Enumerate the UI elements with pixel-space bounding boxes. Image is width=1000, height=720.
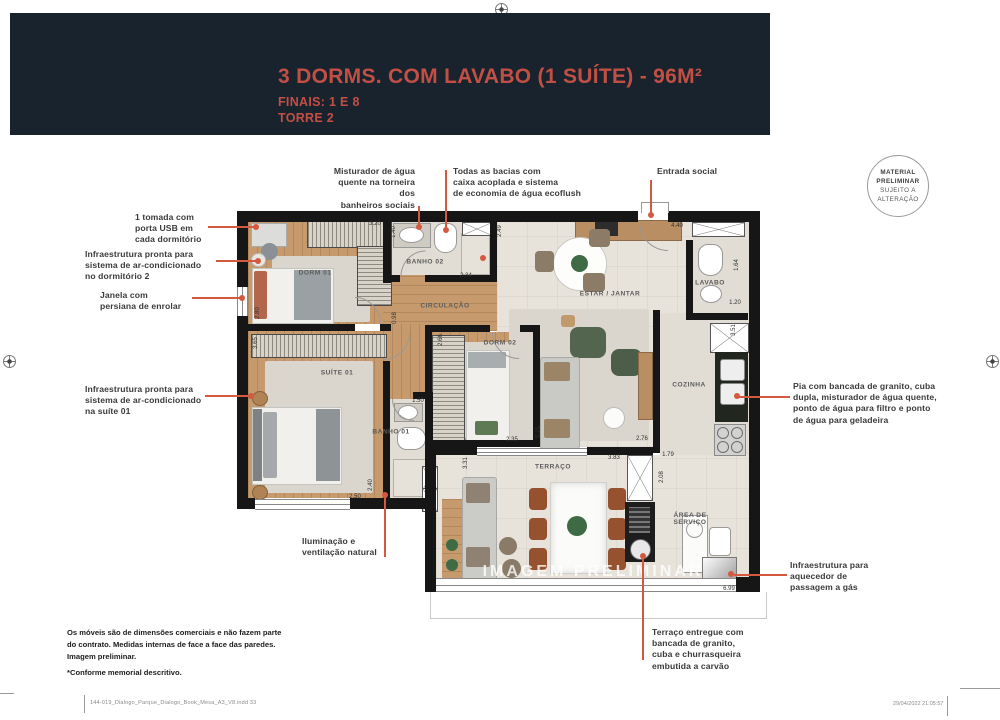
window [255, 499, 350, 510]
dimension-label: 2.34 [460, 273, 472, 279]
sliding-door [477, 448, 587, 456]
wall [237, 316, 248, 509]
stamp-line: MATERIAL [880, 168, 915, 177]
annotation-pia: Pia com bancada de granito, cuba dupla, … [793, 381, 948, 426]
print-timestamp: 29/04/2022 21:05:57 [893, 701, 943, 707]
window-shaft [710, 323, 749, 353]
burner [717, 427, 729, 439]
wall [686, 240, 693, 320]
dimension-label: 1.50 [412, 398, 424, 404]
wall [237, 211, 638, 222]
wardrobe [251, 334, 387, 358]
dimension-label: 2.80 [255, 307, 261, 319]
side-table [603, 407, 625, 429]
dimension-label: 3.65 [253, 337, 259, 349]
annotation-aquecedor: Infraestrutura para aquecedor de passage… [790, 560, 905, 594]
footer-memorial: *Conforme memorial descritivo. [67, 668, 367, 677]
registration-mark-right [986, 355, 999, 368]
leader-line [739, 396, 790, 398]
room-label: ESTAR / JANTAR [580, 291, 641, 298]
crop-mark [960, 688, 1000, 689]
leader-dot [648, 212, 654, 218]
side-table [561, 315, 575, 327]
wall [490, 211, 497, 282]
dimension-label: 1.40 [391, 226, 397, 238]
dimension-label: 1.20 [729, 300, 741, 306]
wall [380, 324, 391, 331]
leader-dot [734, 393, 740, 399]
bed-pillow [263, 412, 277, 478]
wall [425, 455, 436, 592]
chair [589, 229, 610, 247]
dimension-label: 2.50 [349, 494, 361, 500]
chair [529, 488, 547, 510]
annotation-janela: Janela com persiana de enrolar [100, 290, 198, 312]
window-shaft [627, 455, 653, 501]
stamp-line: SUJEITO A [880, 186, 916, 195]
annotation-entrada: Entrada social [657, 166, 737, 177]
leader-dot [239, 295, 245, 301]
wall [425, 440, 540, 447]
chair [529, 518, 547, 540]
kitchen-sink [720, 359, 745, 381]
dimension-label: 3.51 [731, 324, 737, 336]
room-label: DORM 02 [484, 340, 517, 347]
chair [608, 488, 626, 510]
chair [608, 518, 626, 540]
sofa-pillow [544, 362, 570, 381]
entry-recess [641, 202, 669, 213]
crop-mark [0, 693, 14, 694]
leader-dot [416, 224, 422, 230]
room-label: SUÍTE 01 [321, 370, 354, 377]
wall [587, 447, 653, 455]
leader-line [384, 497, 386, 557]
window [237, 287, 248, 316]
leader-line [208, 226, 254, 228]
wall [383, 211, 391, 283]
dimension-label: 1.64 [734, 259, 740, 271]
dimension-label: 2.40 [368, 479, 374, 491]
leader-dot [443, 227, 449, 233]
dimension-label: 3.20 [369, 221, 381, 227]
pouf [499, 537, 517, 555]
console [638, 352, 653, 420]
floor-plan: IMAGEM PRELIMINAR DORM 01BANHO 02CIRCULA… [237, 211, 760, 592]
room-label: TERRAÇO [535, 464, 571, 471]
dimension-label: 2.49 [497, 225, 503, 237]
footer-notes: Os móveis são de dimensões comerciais e … [67, 627, 367, 662]
leader-dot [382, 492, 388, 498]
file-info: 144-019_Dialogo_Parque_Dialogo_Book_Mesa… [90, 700, 256, 706]
sofa-pillow [466, 483, 490, 503]
room-label: COZINHA [672, 382, 706, 389]
burner [731, 441, 743, 453]
wall [686, 313, 748, 320]
stamp-line: PRELIMINAR [876, 177, 919, 186]
dimension-label: 0.98 [392, 312, 398, 324]
leader-line [445, 170, 447, 228]
annotation-misturador: Misturador de água quente na torneira do… [322, 166, 415, 211]
room-label: BANHO 01 [372, 429, 409, 436]
leader-line [205, 395, 249, 397]
header-tower: TORRE 2 [278, 111, 334, 125]
sofa-pillow [544, 419, 570, 438]
bed-blanket [294, 270, 331, 320]
dimension-label: 1.79 [662, 452, 674, 458]
preliminary-stamp: MATERIAL PRELIMINAR SUJEITO A ALTERAÇÃO [867, 155, 929, 217]
dimension-label: 4.40 [671, 223, 683, 229]
page: 3 DORMS. COM LAVABO (1 SUÍTE) - 96M² FIN… [0, 0, 1000, 720]
annotation-ac-dorm2: Infraestrutura pronta para sistema de ar… [85, 249, 223, 283]
annotation-usb: 1 tomada com porta USB em cada dormitóri… [135, 212, 223, 246]
crop-mark [947, 696, 948, 716]
room-label: ÁREA DE SERVIÇO [673, 512, 706, 526]
leader-dot [480, 255, 486, 261]
dimension-label: 3.31 [463, 457, 469, 469]
barbecue-vent [629, 507, 650, 533]
bed-pillow [468, 352, 506, 368]
leader-dot [640, 553, 646, 559]
leader-dot [728, 571, 734, 577]
wall [237, 211, 248, 287]
leader-line [216, 260, 256, 262]
chair [583, 273, 605, 292]
room-label: DORM 01 [299, 270, 332, 277]
balcony-slab-outline [430, 592, 767, 619]
wall [749, 211, 760, 585]
bed-headboard [253, 409, 262, 481]
plant [446, 539, 458, 551]
plant [571, 255, 588, 272]
wall [668, 211, 760, 222]
leader-dot [248, 393, 254, 399]
header-band: 3 DORMS. COM LAVABO (1 SUÍTE) - 96M² FIN… [10, 13, 770, 135]
burner [731, 427, 743, 439]
annotation-bacias: Todas as bacias com caixa acoplada e sis… [453, 166, 593, 200]
dimension-label: 2.76 [636, 436, 648, 442]
wall [432, 325, 490, 332]
shower [461, 233, 490, 275]
chair [535, 251, 554, 272]
dimension-label: 2.35 [506, 437, 518, 443]
dimension-label: 5.25 [536, 426, 542, 438]
wall [653, 310, 660, 453]
dimension-label: 3.83 [608, 455, 620, 461]
stamp-line: ALTERAÇÃO [877, 195, 918, 204]
laundry-sink [709, 527, 731, 556]
annotation-ac-suite: Infraestrutura pronta para sistema de ar… [85, 384, 223, 418]
plant [567, 516, 587, 536]
burner [717, 441, 729, 453]
wardrobe [432, 335, 465, 447]
armchair [570, 327, 606, 358]
annotation-iluminacao: Iluminação e ventilação natural [302, 536, 382, 558]
leader-line [734, 574, 787, 576]
wall [350, 498, 433, 509]
watermark: IMAGEM PRELIMINAR [437, 563, 749, 581]
sink [700, 285, 722, 303]
window-shaft [692, 222, 745, 237]
toilet [698, 244, 723, 276]
dimension-label: 2.08 [659, 471, 665, 483]
dimension-label: 2.66 [438, 334, 444, 346]
wall [237, 324, 355, 331]
kitchen-sink [720, 383, 745, 405]
page-title: 3 DORMS. COM LAVABO (1 SUÍTE) - 96M² [278, 65, 702, 89]
window-shaft [462, 222, 492, 236]
registration-mark-left [3, 355, 16, 368]
leader-line [642, 558, 644, 660]
header-finals: FINAIS: 1 E 8 [278, 95, 360, 109]
leader-line [418, 206, 420, 225]
room-label: CIRCULAÇÃO [420, 303, 469, 310]
room-label: BANHO 02 [406, 259, 443, 266]
wall [425, 447, 477, 455]
bed-pillow [475, 421, 498, 435]
leader-line [650, 180, 652, 213]
wall [383, 275, 400, 282]
leader-line [192, 297, 240, 299]
leader-dot [255, 258, 261, 264]
leader-dot [253, 224, 259, 230]
wall [520, 325, 540, 332]
bed-blanket [316, 409, 340, 481]
wall [237, 498, 255, 509]
nightstand [252, 391, 268, 406]
dimension-label: 6.99 [723, 586, 735, 592]
room-label: LAVABO [695, 280, 725, 287]
annotation-terraco: Terraço entregue com bancada de granito,… [652, 627, 770, 672]
crop-mark [84, 695, 85, 713]
